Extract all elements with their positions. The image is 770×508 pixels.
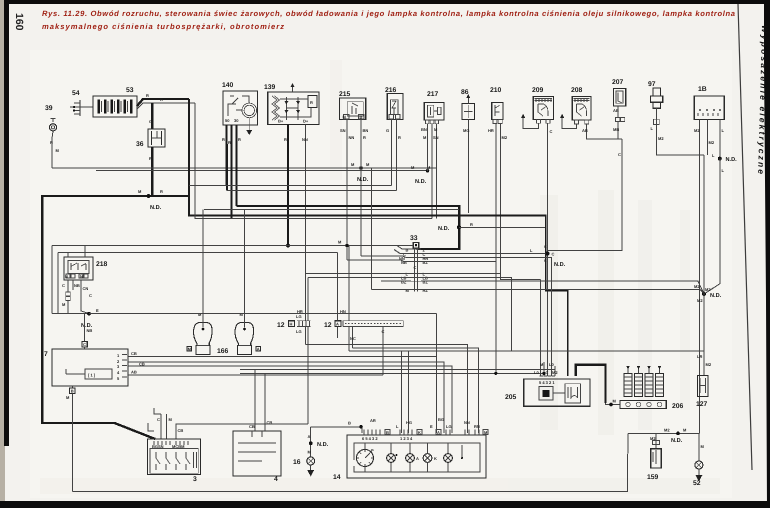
- svg-text:127: 127: [696, 401, 708, 408]
- svg-text:L0: L0: [534, 370, 539, 375]
- svg-text:218: 218: [96, 261, 108, 268]
- svg-text:M2: M2: [664, 428, 670, 433]
- svg-text:12: 12: [324, 322, 332, 329]
- svg-text:1 2 3 4: 1 2 3 4: [400, 436, 413, 441]
- svg-text:LG: LG: [446, 424, 452, 429]
- svg-text:R: R: [238, 137, 241, 142]
- svg-text:R: R: [363, 135, 366, 140]
- svg-text:AR: AR: [370, 418, 376, 423]
- svg-text:30: 30: [234, 118, 239, 123]
- svg-text:AB: AB: [131, 370, 137, 375]
- svg-text:C: C: [544, 244, 547, 249]
- svg-text:B: B: [406, 248, 409, 253]
- svg-text:NB: NB: [74, 283, 80, 288]
- svg-text:B: B: [71, 389, 74, 394]
- svg-text:B+: B+: [278, 119, 284, 124]
- svg-text:4: 4: [274, 476, 278, 483]
- svg-text:C: C: [414, 265, 417, 270]
- svg-text:N.D.: N.D.: [438, 226, 450, 232]
- svg-text:217: 217: [427, 91, 439, 98]
- svg-text:M2: M2: [709, 140, 715, 145]
- svg-text:39: 39: [45, 105, 53, 112]
- svg-text:C: C: [546, 370, 549, 375]
- svg-text:M2: M2: [706, 362, 712, 367]
- svg-text:1B: 1B: [698, 86, 707, 93]
- svg-text:C: C: [550, 129, 553, 134]
- svg-text:SN: SN: [433, 135, 439, 140]
- svg-text:E: E: [430, 424, 433, 429]
- svg-text:159: 159: [647, 474, 659, 481]
- svg-text:NC: NC: [350, 336, 356, 341]
- svg-text:N.D.: N.D.: [357, 177, 369, 183]
- svg-text:7: 7: [44, 351, 48, 358]
- svg-text:B: B: [360, 115, 363, 120]
- svg-text:NN: NN: [349, 135, 355, 140]
- svg-text:K: K: [418, 430, 421, 435]
- svg-text:R: R: [310, 100, 313, 105]
- svg-text:206: 206: [672, 403, 684, 410]
- svg-text:12: 12: [277, 322, 285, 329]
- svg-text:HZ: HZ: [423, 288, 429, 293]
- svg-text:MB: MB: [613, 127, 619, 132]
- svg-text:215: 215: [339, 91, 351, 98]
- svg-text:R: R: [470, 222, 473, 227]
- svg-text:NN: NN: [464, 420, 470, 425]
- svg-text:CB: CB: [178, 428, 184, 433]
- svg-text:N.D.: N.D.: [150, 205, 162, 211]
- svg-text:M2: M2: [658, 136, 664, 141]
- svg-text:BN: BN: [421, 127, 427, 132]
- svg-text:3: 3: [193, 476, 197, 483]
- svg-text:N.D.: N.D.: [710, 293, 722, 299]
- svg-text:M2: M2: [705, 287, 711, 292]
- svg-text:B: B: [348, 421, 351, 426]
- svg-text:HG: HG: [406, 420, 412, 425]
- svg-text:Rys. 11.29. Obwód rozruchu, st: Rys. 11.29. Obwód rozruchu, sterowania ś…: [42, 9, 735, 18]
- svg-text:BZ: BZ: [423, 280, 429, 285]
- svg-text:G: G: [386, 128, 389, 133]
- svg-text:209: 209: [532, 87, 544, 94]
- svg-text:N: N: [65, 274, 68, 279]
- svg-text:A: A: [308, 434, 311, 439]
- svg-text:R: R: [222, 137, 225, 142]
- svg-text:C: C: [83, 342, 86, 347]
- svg-text:6 5 4 3 2: 6 5 4 3 2: [362, 436, 378, 441]
- svg-text:207: 207: [612, 79, 624, 86]
- svg-text:R: R: [228, 140, 231, 145]
- svg-text:N.D.: N.D.: [671, 438, 683, 444]
- svg-text:M2: M2: [694, 128, 700, 133]
- svg-text:36: 36: [136, 141, 144, 148]
- svg-text:86: 86: [461, 89, 469, 96]
- svg-text:54: 54: [72, 90, 80, 97]
- svg-text:CB: CB: [249, 424, 255, 429]
- svg-text:R: R: [50, 140, 53, 145]
- svg-text:CN: CN: [83, 286, 89, 291]
- svg-text:B: B: [386, 430, 389, 435]
- svg-text:NN: NN: [302, 137, 308, 142]
- svg-text:AB: AB: [582, 128, 588, 133]
- svg-text:P: P: [371, 448, 374, 453]
- svg-text:N.D.: N.D.: [317, 442, 329, 448]
- svg-text:53: 53: [126, 87, 134, 94]
- svg-text:H: H: [290, 322, 293, 327]
- svg-text:216: 216: [385, 87, 397, 94]
- svg-text:A: A: [257, 346, 260, 351]
- svg-text:LG: LG: [296, 329, 302, 334]
- svg-text:[ 1 ]: [ 1 ]: [88, 373, 96, 378]
- svg-text:BN: BN: [363, 128, 369, 133]
- svg-text:M2: M2: [697, 298, 703, 303]
- svg-text:HR: HR: [488, 128, 494, 133]
- svg-text:C: C: [157, 417, 160, 422]
- svg-text:M2: M2: [694, 284, 700, 289]
- svg-text:RN: RN: [474, 424, 480, 429]
- svg-text:52: 52: [693, 480, 701, 487]
- svg-text:LG: LG: [296, 314, 302, 319]
- svg-text:D+: D+: [303, 119, 309, 124]
- svg-text:A: A: [437, 430, 440, 435]
- svg-text:MG: MG: [463, 128, 469, 133]
- svg-text:16: 16: [293, 459, 301, 466]
- svg-text:97: 97: [648, 81, 656, 88]
- svg-text:205: 205: [505, 394, 517, 401]
- svg-text:L0: L0: [549, 362, 554, 367]
- svg-text:N.D.: N.D.: [554, 262, 566, 268]
- svg-text:C: C: [618, 152, 621, 157]
- svg-text:NB: NB: [87, 328, 93, 333]
- svg-text:R: R: [160, 97, 163, 102]
- svg-text:C: C: [62, 283, 65, 288]
- svg-text:M2: M2: [552, 370, 558, 375]
- svg-text:K: K: [434, 456, 437, 461]
- svg-text:R: R: [284, 137, 287, 142]
- svg-text:R: R: [398, 135, 401, 140]
- svg-text:50: 50: [225, 118, 230, 123]
- svg-text:14: 14: [333, 474, 341, 481]
- svg-text:N: N: [80, 274, 83, 279]
- svg-text:BGSN: BGSN: [152, 444, 164, 449]
- svg-text:E: E: [96, 308, 99, 313]
- svg-text:C: C: [552, 252, 555, 257]
- svg-text:CB: CB: [131, 351, 137, 356]
- svg-text:M2: M2: [502, 135, 508, 140]
- svg-text:R: R: [146, 93, 149, 98]
- svg-text:maksymalnego ciśnienia turbosp: maksymalnego ciśnienia turbosprężarki, o…: [42, 22, 284, 31]
- svg-text:166: 166: [217, 348, 229, 355]
- svg-text:A: A: [416, 456, 419, 461]
- svg-text:LR: LR: [697, 354, 702, 359]
- svg-text:5 4 3 2 1: 5 4 3 2 1: [539, 380, 555, 385]
- svg-text:BG: BG: [438, 417, 444, 422]
- svg-text:33: 33: [410, 235, 418, 242]
- svg-text:G: G: [149, 119, 152, 124]
- svg-text:208: 208: [571, 87, 583, 94]
- svg-text:C: C: [89, 293, 92, 298]
- svg-text:AB: AB: [613, 108, 619, 113]
- svg-text:R: R: [160, 189, 163, 194]
- svg-text:C: C: [544, 258, 547, 263]
- svg-text:MCBM: MCBM: [172, 444, 185, 449]
- svg-text:160: 160: [13, 13, 25, 31]
- svg-text:SN: SN: [340, 128, 346, 133]
- svg-text:140: 140: [222, 82, 234, 89]
- svg-text:210: 210: [490, 87, 502, 94]
- svg-text:R: R: [149, 156, 152, 161]
- svg-text:139: 139: [264, 84, 276, 91]
- svg-text:N.D.: N.D.: [726, 157, 738, 163]
- svg-text:BZ: BZ: [401, 280, 407, 285]
- svg-text:N.D.: N.D.: [415, 179, 427, 185]
- svg-text:BZ: BZ: [423, 260, 429, 265]
- svg-text:A: A: [336, 322, 339, 327]
